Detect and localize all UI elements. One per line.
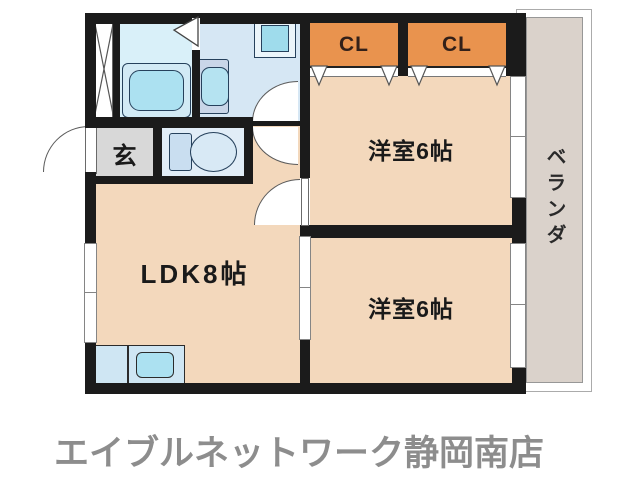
wall-center-vertical — [300, 13, 310, 178]
wall-left-lower — [85, 343, 96, 394]
hatch-x-icon — [94, 19, 114, 119]
toilet-tank-icon — [169, 133, 192, 171]
sliding-door-western2 — [299, 236, 311, 340]
wall-entrance-toilet — [153, 122, 162, 184]
wall-bottom — [85, 383, 526, 394]
wall-toilet-right — [244, 122, 253, 184]
floorplan-canvas: ベランダ — [0, 0, 640, 480]
closet-1-label: CL — [339, 33, 369, 57]
entrance-door-arc — [43, 126, 89, 172]
wall-hatch-right — [113, 13, 120, 122]
window-western1 — [510, 76, 526, 198]
washing-machine-icon — [261, 25, 289, 52]
window-ldk — [84, 243, 97, 343]
kitchen-counter-divider — [127, 346, 129, 383]
store-name: エイブルネットワーク静岡南店 — [54, 425, 544, 476]
sink-basin-icon — [201, 67, 229, 106]
label-ldk: LDK8帖 — [110, 254, 280, 291]
label-entrance: 玄 — [96, 136, 153, 171]
folding-door-triangles-icon — [305, 64, 515, 90]
wall-right-lower — [512, 368, 526, 394]
closet-2: CL — [408, 23, 506, 66]
toilet-bowl-icon — [190, 132, 237, 172]
label-western1: 洋室6帖 — [320, 132, 502, 166]
bathtub-inner-icon — [129, 70, 184, 111]
bathroom-door-flap-icon — [170, 15, 202, 49]
label-western2: 洋室6帖 — [320, 290, 502, 324]
hatch-storage — [93, 18, 113, 118]
wall-left-upper — [85, 13, 96, 128]
closet-1: CL — [310, 23, 398, 66]
window-western2 — [510, 243, 526, 368]
veranda-label: ベランダ — [540, 146, 569, 250]
wall-ldk-western2 — [300, 340, 310, 383]
western1-door-leaf — [301, 178, 309, 226]
wall-right-middle — [512, 198, 526, 243]
wall-between-rooms — [300, 225, 512, 238]
veranda: ベランダ — [526, 17, 583, 383]
wall-wet-bottom — [85, 117, 253, 128]
kitchen-sink-icon — [136, 352, 174, 378]
wall-toilet-bottom — [85, 176, 253, 184]
closet-2-label: CL — [442, 33, 472, 57]
wall-bath-washroom — [192, 48, 200, 122]
